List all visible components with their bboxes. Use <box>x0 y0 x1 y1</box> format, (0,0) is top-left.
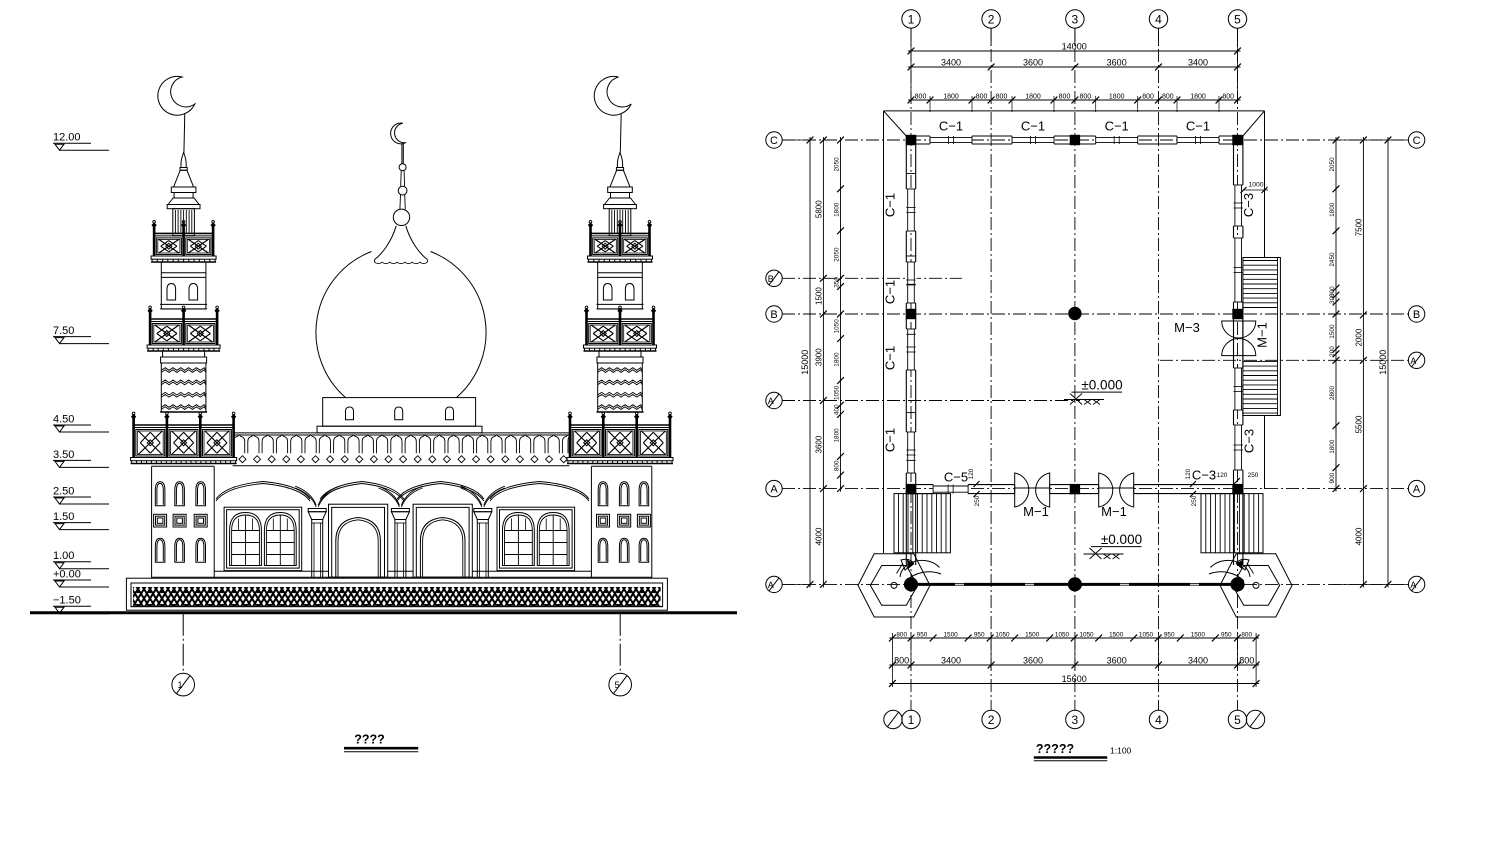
svg-text:5800: 5800 <box>814 200 823 218</box>
svg-text:C−3: C−3 <box>1192 468 1216 483</box>
svg-text:4: 4 <box>1155 12 1162 26</box>
svg-text:1.00: 1.00 <box>53 550 74 562</box>
svg-text:12.00: 12.00 <box>53 132 81 144</box>
svg-text:1500: 1500 <box>1109 632 1124 639</box>
svg-text:800: 800 <box>915 94 927 101</box>
svg-text:1500: 1500 <box>1329 324 1336 339</box>
svg-text:1800: 1800 <box>1025 94 1041 101</box>
svg-text:1800: 1800 <box>1109 94 1125 101</box>
svg-text:1000: 1000 <box>1248 182 1263 189</box>
svg-text:5: 5 <box>1234 12 1241 26</box>
svg-text:120: 120 <box>1217 472 1228 479</box>
svg-text:800: 800 <box>1222 94 1234 101</box>
svg-text:15000: 15000 <box>1378 350 1388 375</box>
svg-text:2050: 2050 <box>1329 157 1336 172</box>
svg-text:+0.00: +0.00 <box>53 569 81 581</box>
svg-text:120: 120 <box>1185 468 1192 479</box>
svg-text:A: A <box>770 484 778 496</box>
svg-text:800: 800 <box>996 94 1008 101</box>
svg-text:B: B <box>768 274 774 284</box>
svg-text:C: C <box>1413 135 1421 147</box>
svg-text:5: 5 <box>1234 713 1241 727</box>
svg-text:2450: 2450 <box>1329 252 1336 267</box>
svg-text:1800: 1800 <box>834 352 841 367</box>
svg-text:2: 2 <box>988 12 995 26</box>
svg-text:C−1: C−1 <box>939 119 963 134</box>
svg-text:3400: 3400 <box>1188 58 1208 68</box>
svg-text:3900: 3900 <box>814 348 823 366</box>
svg-text:250: 250 <box>1248 472 1259 479</box>
svg-text:C−1: C−1 <box>1021 119 1045 134</box>
svg-text:3600: 3600 <box>814 435 823 453</box>
svg-text:C−3: C−3 <box>1242 429 1257 453</box>
svg-text:800: 800 <box>834 460 841 471</box>
svg-text:C−1: C−1 <box>883 280 898 304</box>
svg-text:C−1: C−1 <box>1186 119 1210 134</box>
svg-text:1050: 1050 <box>834 319 841 334</box>
svg-text:1800: 1800 <box>1329 202 1336 217</box>
svg-text:800: 800 <box>1241 632 1252 639</box>
svg-text:M−1: M−1 <box>1101 504 1127 519</box>
svg-text:M−1: M−1 <box>1023 504 1049 519</box>
svg-text:800: 800 <box>1059 94 1071 101</box>
svg-text:1800: 1800 <box>943 94 959 101</box>
svg-text:A: A <box>1410 580 1416 590</box>
svg-text:2000: 2000 <box>1354 328 1363 346</box>
svg-text:200: 200 <box>1329 346 1336 357</box>
svg-text:1800: 1800 <box>1329 439 1336 454</box>
svg-text:1: 1 <box>908 12 915 26</box>
svg-text:400: 400 <box>834 404 841 415</box>
svg-text:1:100: 1:100 <box>1110 746 1132 756</box>
svg-text:120: 120 <box>968 468 975 479</box>
svg-text:4000: 4000 <box>1354 527 1363 545</box>
svg-text:3600: 3600 <box>1023 656 1043 666</box>
svg-text:2.50: 2.50 <box>53 486 74 498</box>
svg-text:900: 900 <box>1329 472 1336 483</box>
svg-text:950: 950 <box>1221 632 1232 639</box>
svg-text:1050: 1050 <box>834 385 841 400</box>
svg-text:800: 800 <box>1079 94 1091 101</box>
svg-text:950: 950 <box>974 632 985 639</box>
svg-text:800: 800 <box>894 656 909 666</box>
svg-text:4000: 4000 <box>814 527 823 545</box>
svg-text:950: 950 <box>1164 632 1175 639</box>
svg-text:2800: 2800 <box>1329 385 1336 400</box>
svg-text:?????: ????? <box>1036 742 1074 756</box>
svg-text:−1.50: −1.50 <box>53 595 81 607</box>
svg-text:±0.000: ±0.000 <box>1081 378 1122 393</box>
svg-text:A: A <box>1413 484 1421 496</box>
svg-text:800: 800 <box>1142 94 1154 101</box>
svg-text:A: A <box>768 580 774 590</box>
svg-text:C−3: C−3 <box>1241 193 1256 217</box>
svg-text:3400: 3400 <box>1188 656 1208 666</box>
svg-text:1050: 1050 <box>1055 632 1070 639</box>
svg-text:250: 250 <box>1191 495 1198 506</box>
svg-text:1: 1 <box>177 680 182 690</box>
svg-text:A: A <box>768 396 774 406</box>
svg-text:C−5: C−5 <box>944 470 968 485</box>
svg-text:3600: 3600 <box>1107 656 1127 666</box>
svg-text:1050: 1050 <box>995 632 1010 639</box>
svg-text:B: B <box>770 309 777 321</box>
svg-text:250: 250 <box>974 495 981 506</box>
svg-text:2: 2 <box>988 713 995 727</box>
svg-text:C−1: C−1 <box>883 193 898 217</box>
svg-text:7500: 7500 <box>1354 218 1363 236</box>
svg-text:M−1: M−1 <box>1255 322 1270 348</box>
svg-text:4: 4 <box>1155 713 1162 727</box>
svg-text:C−1: C−1 <box>883 346 898 370</box>
svg-text:1500: 1500 <box>1191 632 1206 639</box>
svg-text:1050: 1050 <box>1079 632 1094 639</box>
svg-text:15000: 15000 <box>800 350 810 375</box>
svg-text:3: 3 <box>1072 713 1079 727</box>
svg-text:950: 950 <box>917 632 928 639</box>
svg-text:15600: 15600 <box>1062 674 1087 684</box>
svg-text:1.50: 1.50 <box>53 511 74 523</box>
svg-text:C−1: C−1 <box>883 428 898 452</box>
svg-text:800: 800 <box>1162 94 1174 101</box>
svg-text:M−3: M−3 <box>1174 320 1200 335</box>
svg-text:350: 350 <box>834 277 841 288</box>
svg-text:1: 1 <box>908 713 915 727</box>
svg-text:2050: 2050 <box>834 157 841 172</box>
svg-text:1800: 1800 <box>1190 94 1206 101</box>
svg-text:2050: 2050 <box>834 247 841 262</box>
svg-text:5500: 5500 <box>1354 415 1363 433</box>
svg-text:1500: 1500 <box>814 287 823 305</box>
svg-text:1500: 1500 <box>943 632 958 639</box>
svg-text:B: B <box>1413 309 1420 321</box>
svg-text:1500: 1500 <box>1025 632 1040 639</box>
svg-text:3400: 3400 <box>941 58 961 68</box>
svg-text:800: 800 <box>1239 656 1254 666</box>
svg-text:????: ???? <box>354 733 385 747</box>
svg-text:1800: 1800 <box>834 202 841 217</box>
svg-text:1050: 1050 <box>1139 632 1154 639</box>
svg-text:C−1: C−1 <box>1105 119 1129 134</box>
svg-text:1800: 1800 <box>834 428 841 443</box>
svg-text:3600: 3600 <box>1107 58 1127 68</box>
svg-text:±0.000: ±0.000 <box>1101 532 1142 547</box>
svg-text:800: 800 <box>976 94 988 101</box>
svg-text:3.50: 3.50 <box>53 449 74 461</box>
svg-text:A: A <box>1410 356 1416 366</box>
svg-text:800: 800 <box>896 632 907 639</box>
svg-text:C: C <box>770 135 778 147</box>
svg-text:5: 5 <box>614 680 619 690</box>
svg-text:3600: 3600 <box>1023 58 1043 68</box>
svg-text:14000: 14000 <box>1062 42 1087 52</box>
svg-text:300: 300 <box>1329 293 1336 304</box>
svg-text:3400: 3400 <box>941 656 961 666</box>
svg-text:4.50: 4.50 <box>53 414 74 426</box>
svg-text:7.50: 7.50 <box>53 325 74 337</box>
svg-text:3: 3 <box>1072 12 1079 26</box>
